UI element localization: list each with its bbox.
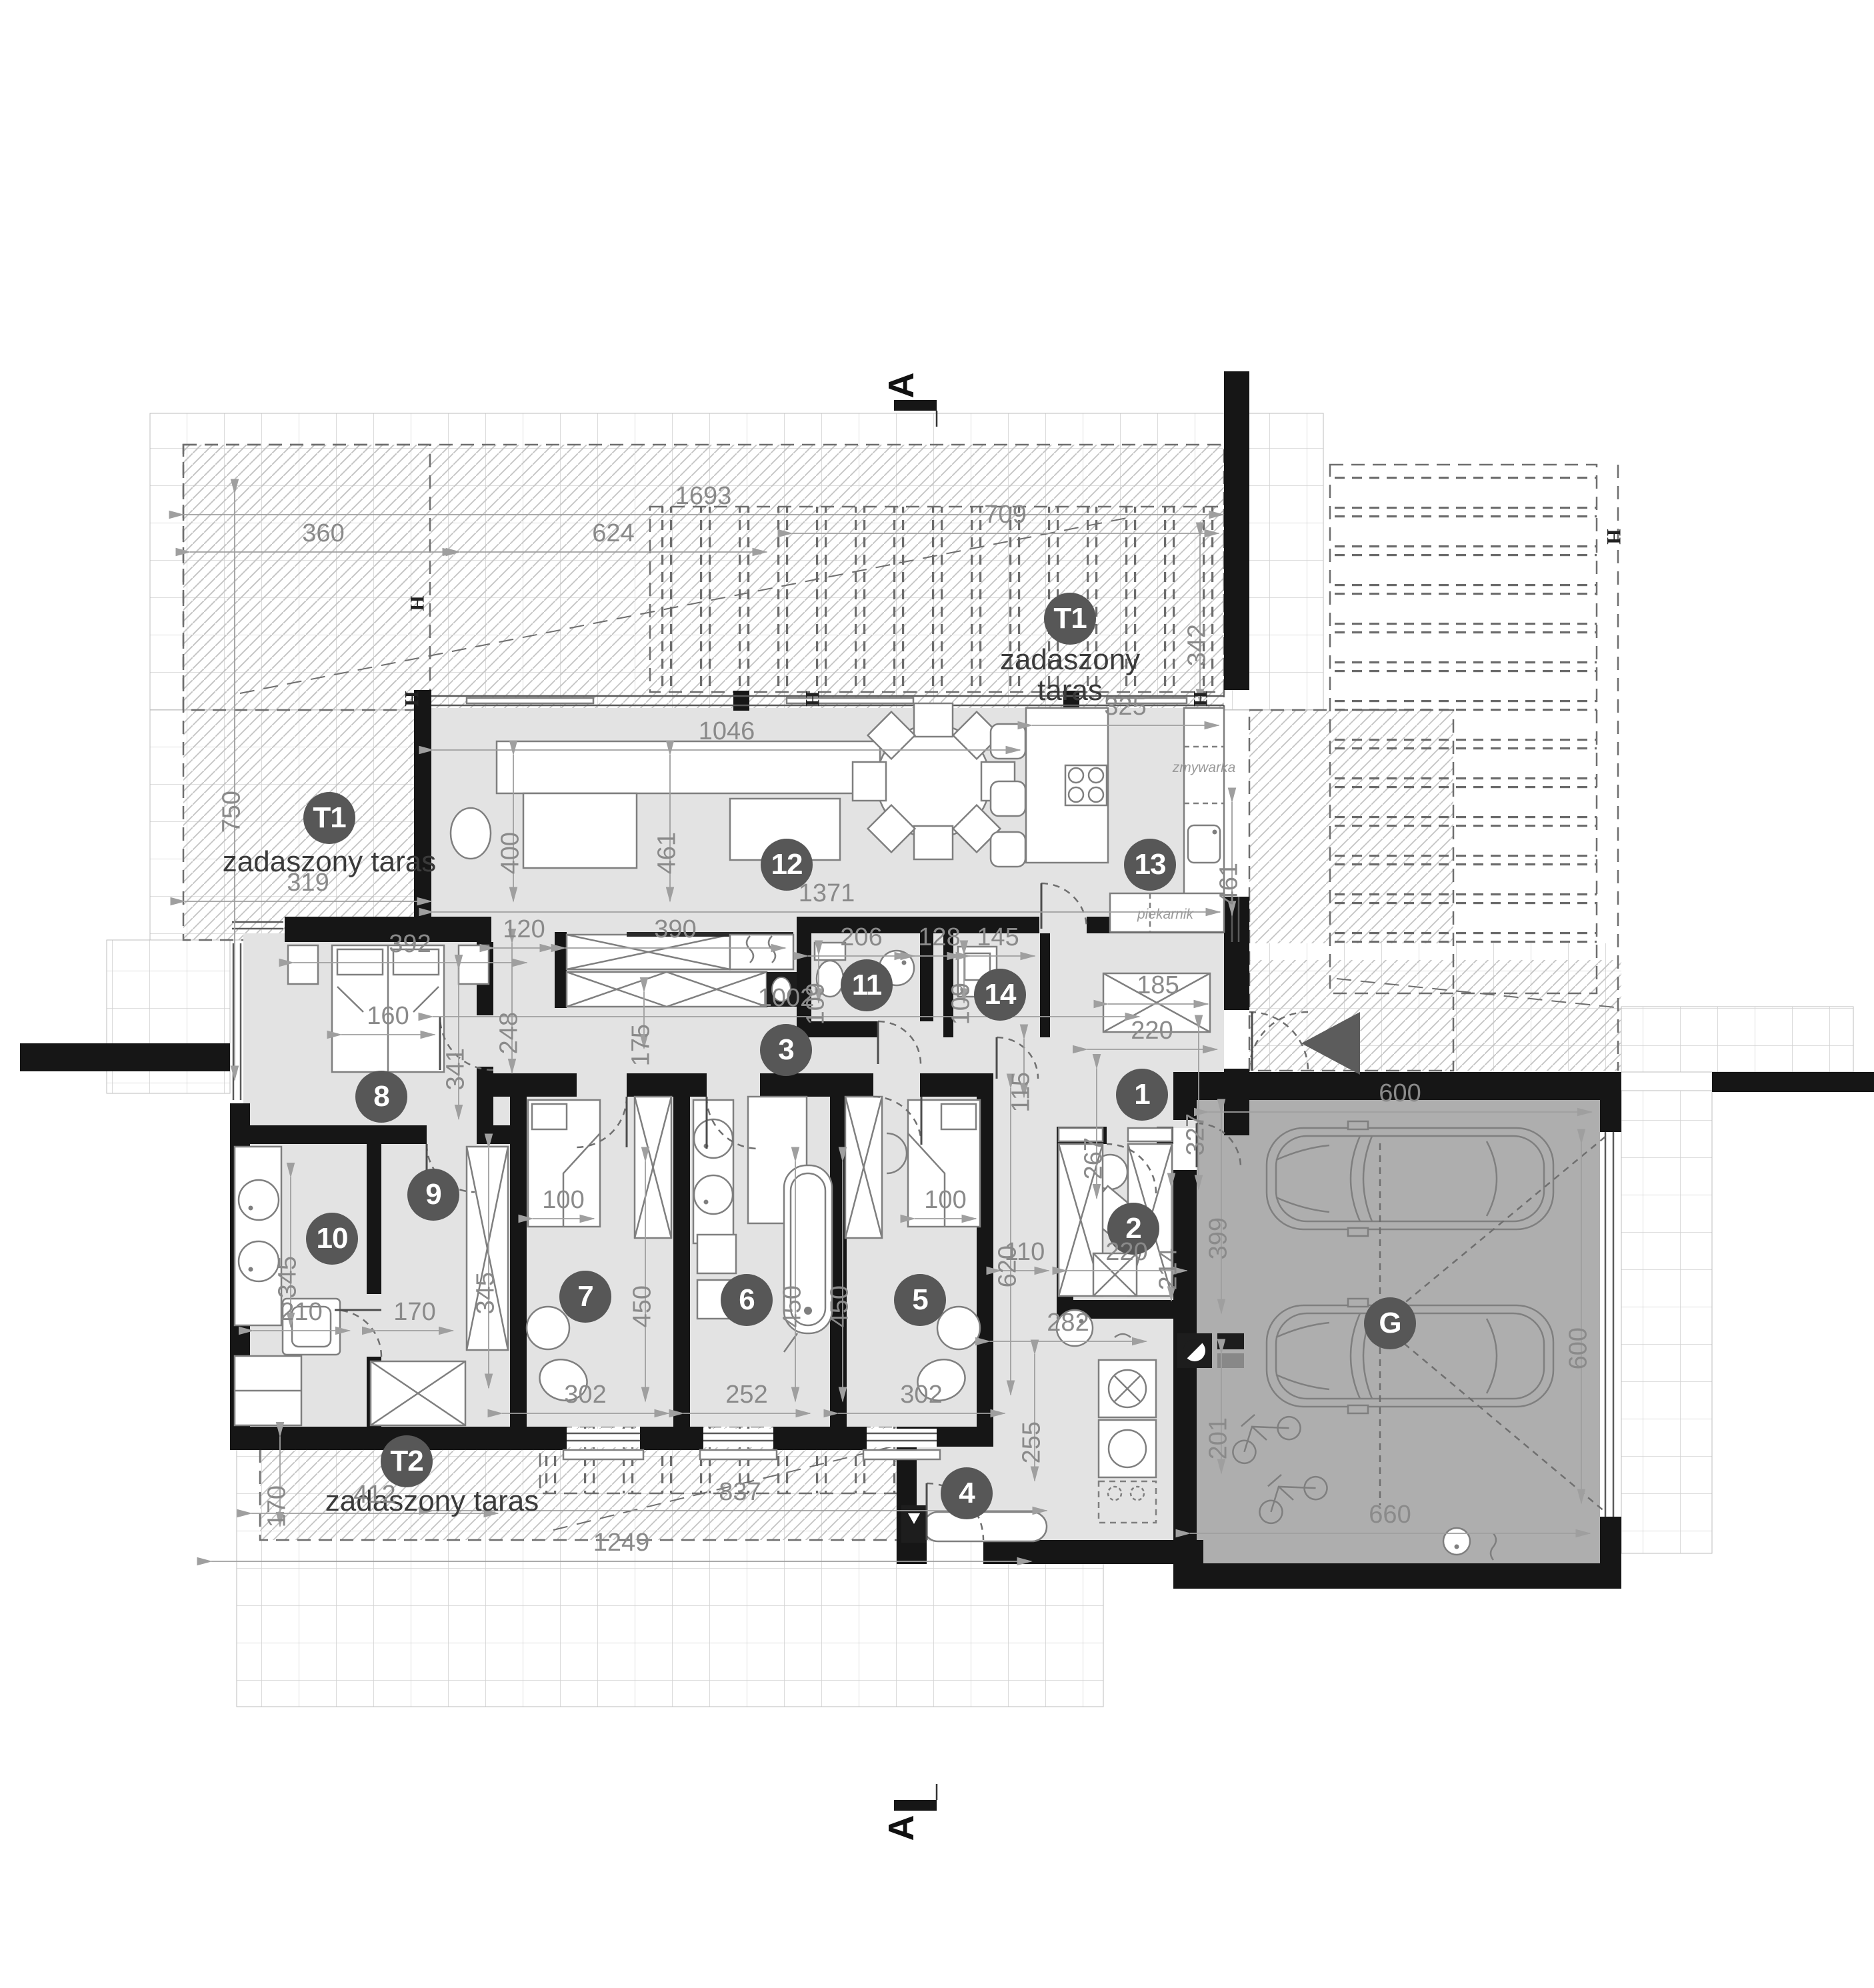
badge-terrace-1-left: T1 bbox=[303, 792, 355, 844]
badge-room-5: 5 bbox=[894, 1274, 946, 1326]
dim-32-345: 345 bbox=[472, 1268, 501, 1314]
dim-36-100: 100 bbox=[924, 1186, 966, 1217]
floor-drain bbox=[1443, 1528, 1470, 1555]
dim-19-109: 109 bbox=[947, 979, 976, 1025]
column-marker-icon: H bbox=[1189, 691, 1211, 706]
side-table bbox=[451, 808, 491, 859]
dim-31-345: 345 bbox=[274, 1252, 303, 1298]
dim-34-170: 170 bbox=[393, 1298, 435, 1329]
dim-18-145: 145 bbox=[977, 923, 1019, 955]
dim-22-175: 175 bbox=[627, 1020, 656, 1066]
dim-27-392: 392 bbox=[389, 930, 431, 961]
dim-26-267: 267 bbox=[1080, 1133, 1109, 1179]
dishwasher-label: zmywarka bbox=[1173, 760, 1236, 776]
t1-right-label-2: taras bbox=[1037, 674, 1103, 707]
dim-54-399: 399 bbox=[1205, 1213, 1233, 1259]
section-marker-0: A bbox=[881, 373, 922, 399]
armchair bbox=[937, 1307, 980, 1349]
dim-55-201: 201 bbox=[1205, 1413, 1233, 1459]
dim-35-100: 100 bbox=[542, 1186, 584, 1217]
sofa bbox=[497, 741, 880, 793]
badge-room-10: 10 bbox=[306, 1213, 358, 1265]
section-marker-1: A bbox=[881, 1815, 922, 1841]
badge-room-14: 14 bbox=[974, 969, 1026, 1021]
dim-28-160: 160 bbox=[367, 1002, 409, 1033]
oven-label: piekarnik bbox=[1137, 907, 1193, 923]
badge-room-6: 6 bbox=[721, 1274, 773, 1326]
bar-stool bbox=[991, 832, 1025, 867]
dim-9-461: 461 bbox=[653, 828, 682, 874]
wardrobe bbox=[567, 972, 767, 1007]
dim-40-302: 302 bbox=[564, 1381, 606, 1412]
badge-room-4: 4 bbox=[941, 1467, 993, 1519]
dim-17-128: 128 bbox=[918, 923, 960, 955]
column-marker-icon: H bbox=[405, 595, 428, 611]
badge-room-8: 8 bbox=[355, 1071, 407, 1123]
dim-4-750: 750 bbox=[218, 787, 247, 833]
bar-stool bbox=[991, 781, 1025, 816]
car bbox=[1267, 1121, 1553, 1236]
hob bbox=[1065, 765, 1107, 805]
dryer bbox=[1099, 1420, 1156, 1477]
dim-10-1371: 1371 bbox=[799, 879, 855, 911]
dim-25-327: 327 bbox=[1182, 1109, 1211, 1155]
dim-11-325: 325 bbox=[1104, 693, 1146, 724]
dim-3-709: 709 bbox=[984, 501, 1026, 532]
dim-57-660: 660 bbox=[1369, 1501, 1411, 1532]
dim-2-624: 624 bbox=[592, 519, 634, 551]
dim-12-461: 461 bbox=[1215, 859, 1244, 905]
t1-left-label: zadaszony taras bbox=[223, 845, 436, 879]
badge-garage: G bbox=[1364, 1297, 1416, 1349]
column-marker-icon: H bbox=[801, 691, 823, 706]
dim-33-210: 210 bbox=[280, 1298, 322, 1329]
sink bbox=[694, 1119, 733, 1158]
badge-terrace-1-right: T1 bbox=[1044, 593, 1096, 645]
dim-8-400: 400 bbox=[497, 828, 525, 874]
dim-50-170: 170 bbox=[263, 1481, 292, 1527]
badge-room-1: 1 bbox=[1116, 1069, 1168, 1121]
badge-room-3: 3 bbox=[760, 1024, 812, 1076]
dim-13-120: 120 bbox=[503, 915, 545, 947]
vanity-counter bbox=[235, 1147, 281, 1325]
floor-plan-canvas: 1234567891011121314T1T1T2Gzadaszony tara… bbox=[0, 0, 1874, 1988]
sink bbox=[239, 1180, 279, 1220]
badge-room-13: 13 bbox=[1124, 839, 1176, 891]
dim-38-450: 450 bbox=[779, 1281, 807, 1327]
dim-1-360: 360 bbox=[302, 519, 344, 551]
column-marker-icon: H bbox=[400, 691, 423, 706]
dim-15-206: 206 bbox=[840, 923, 882, 955]
dim-23-220: 220 bbox=[1131, 1017, 1173, 1048]
dim-0-1693: 1693 bbox=[675, 482, 732, 513]
dim-29-341: 341 bbox=[442, 1044, 471, 1090]
ironing-board bbox=[923, 1512, 1047, 1541]
dim-44-110: 110 bbox=[1005, 1238, 1045, 1269]
t1-right-label-1: zadaszony bbox=[1000, 643, 1140, 677]
dim-5-342: 342 bbox=[1183, 620, 1212, 666]
dim-42-302: 302 bbox=[900, 1381, 942, 1412]
fireplace bbox=[730, 935, 793, 969]
dim-20-185: 185 bbox=[1137, 971, 1179, 1003]
armchair bbox=[527, 1307, 569, 1349]
dim-14-390: 390 bbox=[654, 915, 696, 947]
dim-45-220: 220 bbox=[1105, 1238, 1147, 1269]
dim-52-1249: 1249 bbox=[593, 1529, 650, 1560]
dim-51-837: 837 bbox=[719, 1478, 761, 1509]
dim-21-1002: 1002 bbox=[758, 984, 815, 1015]
dim-49-412: 412 bbox=[353, 1481, 395, 1512]
dim-46-214: 214 bbox=[1155, 1244, 1183, 1290]
dim-37-450: 450 bbox=[629, 1281, 657, 1327]
dim-6-319: 319 bbox=[287, 869, 329, 900]
dim-24-115: 115 bbox=[1007, 1068, 1036, 1113]
dim-48-255: 255 bbox=[1018, 1417, 1047, 1463]
plan-drawing bbox=[0, 0, 1874, 1988]
column-marker-icon: H bbox=[1602, 529, 1625, 544]
badge-room-11: 11 bbox=[841, 959, 893, 1011]
badge-terrace-2: T2 bbox=[381, 1435, 433, 1487]
dim-53-600: 600 bbox=[1379, 1079, 1421, 1111]
dim-47-282: 282 bbox=[1047, 1309, 1089, 1340]
dim-56-600: 600 bbox=[1565, 1323, 1593, 1369]
dim-7-1046: 1046 bbox=[699, 717, 755, 749]
sink bbox=[694, 1175, 733, 1214]
badge-room-9: 9 bbox=[407, 1169, 459, 1221]
sink bbox=[239, 1241, 279, 1281]
bar-stool bbox=[991, 724, 1025, 759]
nightstand bbox=[459, 945, 489, 984]
dim-30-248: 248 bbox=[495, 1008, 524, 1054]
dim-39-450: 450 bbox=[826, 1281, 855, 1327]
badge-room-7: 7 bbox=[559, 1271, 611, 1323]
dim-41-252: 252 bbox=[725, 1381, 767, 1412]
nightstand bbox=[288, 945, 318, 984]
